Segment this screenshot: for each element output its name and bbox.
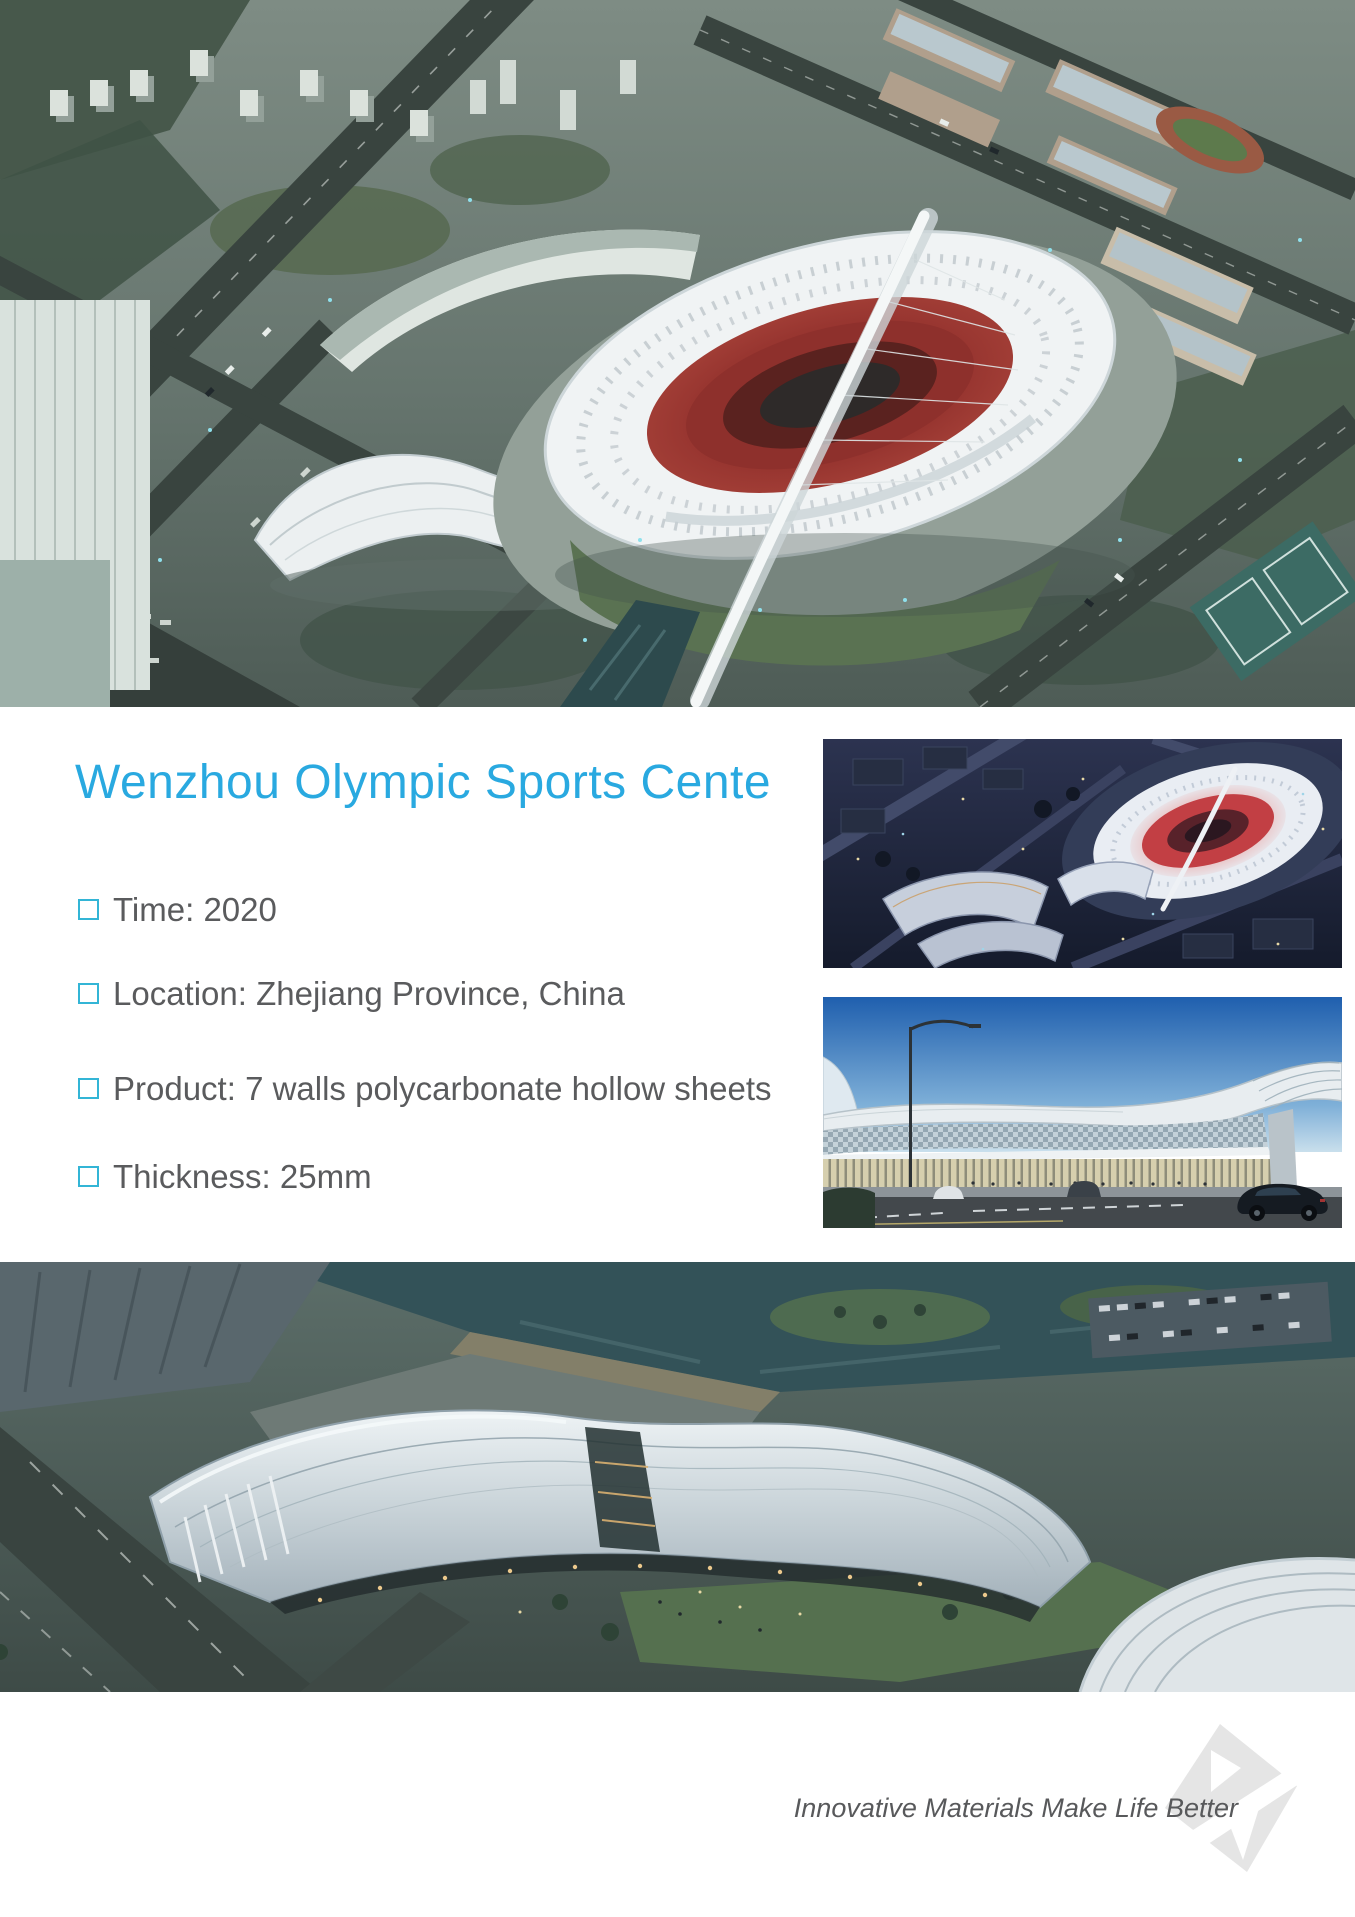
spec-item-location: Location: Zhejiang Province, China <box>78 977 625 1010</box>
square-bullet-icon <box>78 1078 99 1099</box>
bottom-aerial-image <box>0 1262 1355 1692</box>
square-bullet-icon <box>78 983 99 1004</box>
spec-item-time: Time: 2020 <box>78 893 277 926</box>
thumbnail-night-aerial-image <box>823 739 1342 968</box>
square-bullet-icon <box>78 899 99 920</box>
footer-slogan: Innovative Materials Make Life Better <box>794 1793 1238 1824</box>
hero-aerial-image <box>0 0 1355 707</box>
page-title: Wenzhou Olympic Sports Cente <box>75 757 771 810</box>
spec-label: Product: 7 walls polycarbonate hollow sh… <box>113 1072 772 1105</box>
spec-label: Thickness: 25mm <box>113 1160 372 1193</box>
spec-label: Time: 2020 <box>113 893 277 926</box>
spec-item-thickness: Thickness: 25mm <box>78 1160 372 1193</box>
brochure-page: Wenzhou Olympic Sports Cente Time: 2020 … <box>0 0 1355 1917</box>
square-bullet-icon <box>78 1166 99 1187</box>
spec-label: Location: Zhejiang Province, China <box>113 977 625 1010</box>
thumbnail-street-view-image <box>823 997 1342 1228</box>
spec-item-product: Product: 7 walls polycarbonate hollow sh… <box>78 1072 772 1105</box>
